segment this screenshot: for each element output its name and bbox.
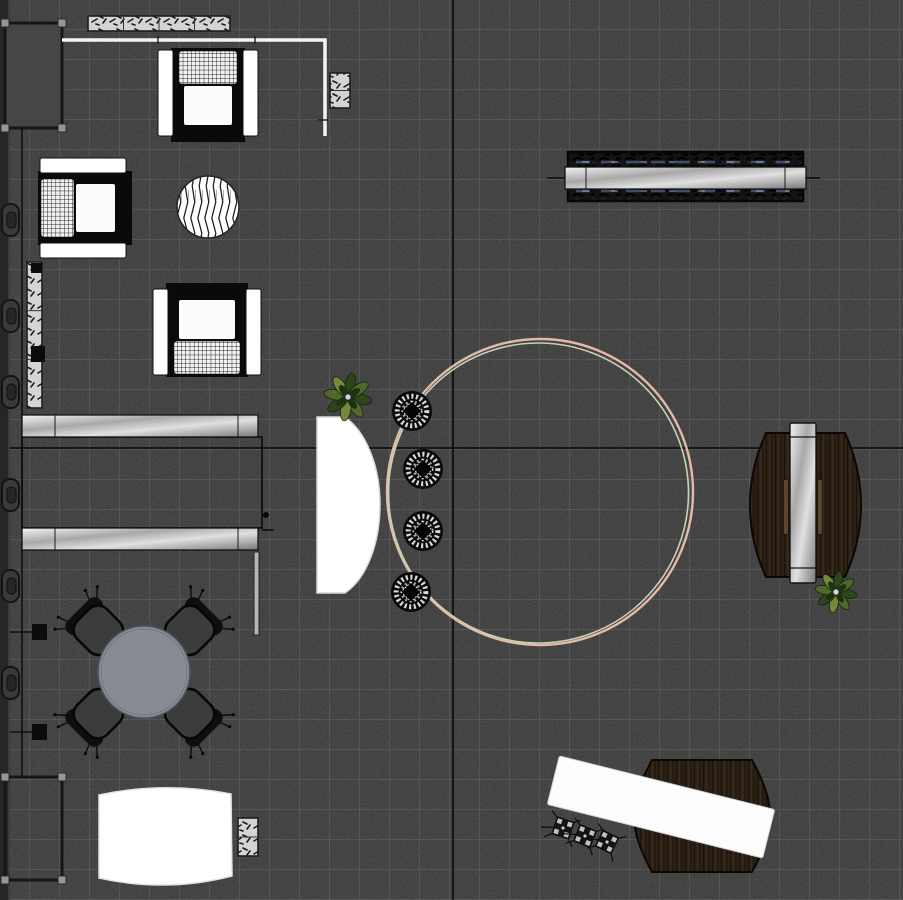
- hatch-strip-top: [88, 16, 230, 31]
- armchair-middle: [153, 283, 261, 377]
- stool-2: [403, 449, 443, 489]
- hatch-block-bottom: [238, 818, 258, 856]
- table-bottom-white: [99, 788, 232, 885]
- left-wall: [0, 0, 10, 900]
- side-desk-metal-bar: [790, 423, 816, 583]
- floor-plan-canvas: [0, 0, 903, 900]
- glass-panel-top-left: [1, 19, 66, 132]
- hatch-strip-left: [27, 262, 45, 408]
- stool-3: [403, 511, 443, 551]
- armchair-top: [158, 48, 258, 142]
- console-shelf-top-right: [547, 152, 820, 201]
- side-desk-slat-right: [818, 480, 823, 535]
- side-desk-slat-left: [784, 480, 789, 535]
- armchair-left: [38, 158, 132, 258]
- stool-4: [391, 572, 431, 612]
- hatch-block-column: [330, 73, 350, 108]
- round-side-table: [177, 176, 239, 238]
- floor-plan-svg: [0, 0, 903, 900]
- stool-1: [392, 391, 432, 431]
